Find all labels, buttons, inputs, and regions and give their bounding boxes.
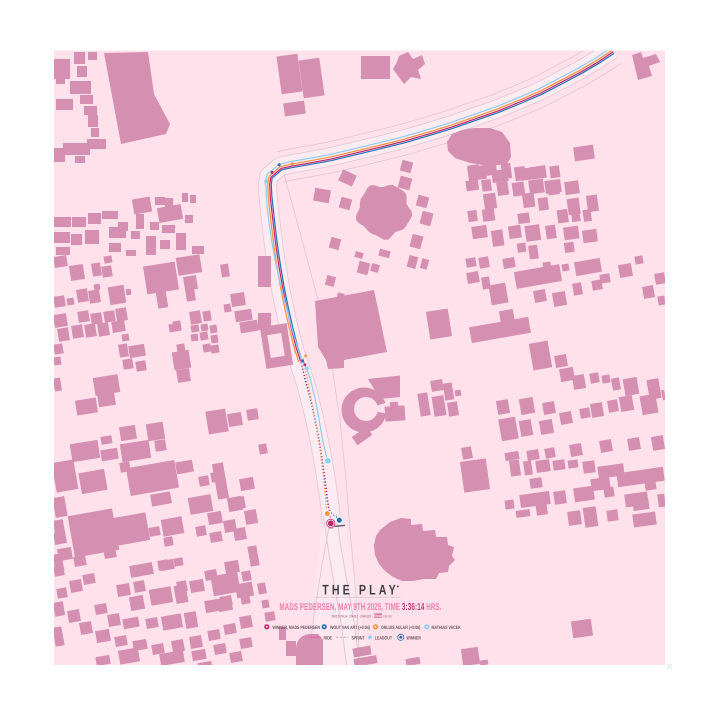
svg-text:GIRO D'ITALIA · STAGE 1 · DURA: GIRO D'ITALIA · STAGE 1 · DURAZZO · <box>332 614 373 618</box>
svg-text:LEADOUT: LEADOUT <box>375 636 392 642</box>
svg-text:RIDE: RIDE <box>324 636 333 642</box>
svg-text:MADS PEDERSEN, MAY 9TH 2025, T: MADS PEDERSEN, MAY 9TH 2025, TIME 3:36:1… <box>280 602 442 613</box>
svg-text:(160 KM): (160 KM) <box>383 614 392 618</box>
svg-text:MATHIAS VACEK: MATHIAS VACEK <box>432 625 462 631</box>
svg-text:THE PLAY: THE PLAY <box>322 582 399 598</box>
svg-text:WINNER, MADS PEDERSEN: WINNER, MADS PEDERSEN <box>273 625 321 631</box>
svg-text:WINNER: WINNER <box>407 636 422 642</box>
svg-text:SPRINT: SPRINT <box>352 636 365 642</box>
svg-text:WOUT VAN ART (+0:04): WOUT VAN ART (+0:04) <box>330 625 370 631</box>
svg-text:TIRANA: TIRANA <box>374 614 382 618</box>
svg-text:ORLUIS AULAR (+0:06): ORLUIS AULAR (+0:06) <box>381 625 421 631</box>
